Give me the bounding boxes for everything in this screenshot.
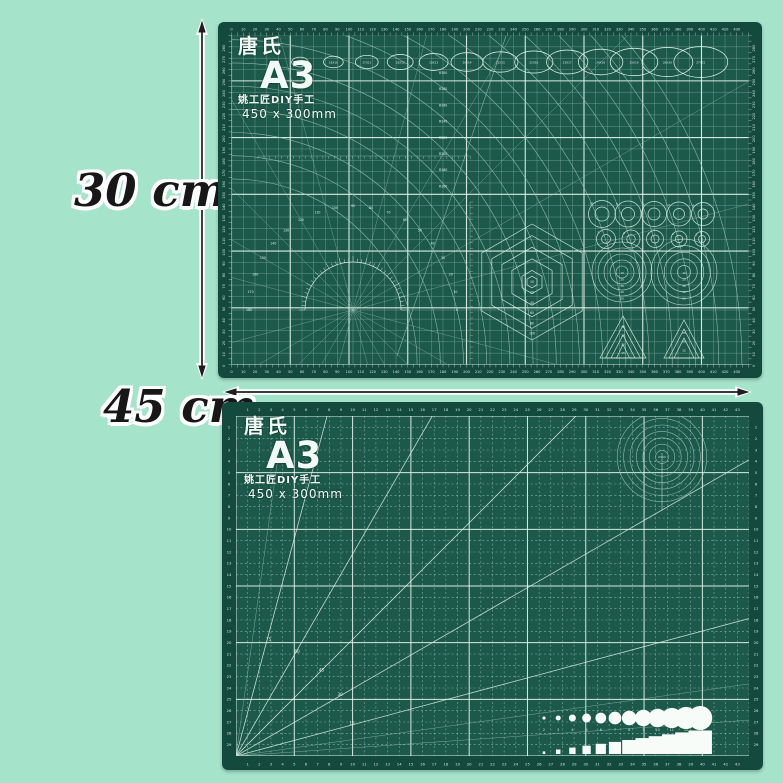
svg-text:60: 60 [300,370,305,374]
svg-text:15: 15 [349,720,355,725]
svg-text:25: 25 [525,762,530,767]
svg-text:340: 340 [628,370,636,374]
svg-text:170: 170 [248,290,254,294]
svg-text:6: 6 [600,728,602,732]
svg-text:42: 42 [723,762,728,767]
svg-text:60: 60 [294,649,300,654]
svg-text:200: 200 [752,135,756,143]
svg-text:20: 20 [682,340,686,344]
svg-text:150: 150 [404,370,412,374]
svg-text:30: 30 [264,370,269,374]
svg-text:21: 21 [227,651,232,656]
svg-text:40: 40 [700,407,705,412]
svg-text:60: 60 [752,295,756,300]
svg-text:21: 21 [754,651,759,656]
svg-text:240: 240 [510,28,518,32]
svg-text:35: 35 [642,407,647,412]
svg-text:40: 40 [276,370,281,374]
svg-text:19: 19 [455,762,460,767]
svg-text:18: 18 [443,762,448,767]
svg-text:40: 40 [222,317,226,322]
svg-text:2: 2 [672,232,674,236]
svg-text:36: 36 [653,407,658,412]
svg-text:360: 360 [651,370,659,374]
svg-text:170: 170 [222,169,226,177]
svg-text:250: 250 [522,28,530,32]
svg-text:29: 29 [754,742,759,747]
svg-text:11: 11 [227,538,232,543]
svg-text:30: 30 [583,762,588,767]
svg-text:15: 15 [754,583,759,588]
svg-text:410: 410 [710,28,718,32]
svg-text:200: 200 [222,135,226,143]
svg-text:24X18: 24X18 [596,60,605,64]
svg-text:18X12: 18X12 [396,60,405,64]
svg-text:10: 10 [655,728,659,732]
svg-text:30: 30 [222,329,226,334]
svg-text:180: 180 [440,28,448,32]
svg-text:10: 10 [350,762,355,767]
svg-text:210: 210 [222,123,226,131]
svg-text:390: 390 [686,370,694,374]
svg-text:29: 29 [227,742,232,747]
svg-text:26: 26 [227,708,232,713]
svg-text:30: 30 [264,28,269,32]
svg-text:270: 270 [222,55,226,63]
svg-text:32: 32 [607,762,612,767]
svg-text:250: 250 [522,370,530,374]
svg-text:270: 270 [545,28,553,32]
svg-text:50: 50 [288,28,293,32]
svg-text:23: 23 [754,674,759,679]
svg-text:110: 110 [357,28,365,32]
svg-text:15: 15 [621,351,625,355]
svg-text:27X21: 27X21 [696,60,705,64]
svg-text:R260: R260 [439,103,447,107]
svg-text:240: 240 [752,89,756,97]
svg-text:190: 190 [451,370,459,374]
svg-text:23: 23 [227,674,232,679]
svg-text:20: 20 [467,762,472,767]
svg-text:23X17: 23X17 [563,60,572,64]
svg-text:R300: R300 [439,71,447,75]
svg-text:100: 100 [346,370,354,374]
svg-text:20: 20 [449,273,453,277]
svg-text:10: 10 [222,351,226,356]
svg-text:19X13: 19X13 [429,60,438,64]
svg-text:6: 6 [693,204,695,208]
svg-text:130: 130 [283,229,289,233]
svg-text:80: 80 [222,272,226,277]
svg-text:250: 250 [752,78,756,86]
svg-text:10: 10 [754,527,759,532]
svg-text:14: 14 [397,407,402,412]
svg-text:390: 390 [686,28,694,32]
svg-text:200: 200 [463,370,471,374]
svg-text:26: 26 [754,708,759,713]
svg-text:22: 22 [490,762,495,767]
svg-text:230: 230 [752,101,756,109]
svg-text:28: 28 [560,762,565,767]
svg-text:140: 140 [393,370,401,374]
svg-text:140: 140 [393,28,401,32]
svg-text:28: 28 [754,731,759,736]
svg-text:0: 0 [456,308,458,312]
svg-text:230: 230 [498,370,506,374]
svg-text:120: 120 [369,28,377,32]
svg-text:140: 140 [222,203,226,211]
svg-text:17: 17 [754,606,759,611]
svg-text:25X19: 25X19 [629,60,638,64]
svg-text:10: 10 [227,527,232,532]
svg-text:22: 22 [490,407,495,412]
svg-text:32: 32 [607,407,612,412]
svg-text:270: 270 [752,55,756,63]
cutting-mat-back: 1122334455667788991010111112121313141415… [222,402,763,770]
svg-text:150: 150 [404,28,412,32]
svg-text:34: 34 [630,762,635,767]
svg-text:43: 43 [735,762,740,767]
subtitle-text: 姚工匠DIY手工 [244,476,343,486]
svg-text:31: 31 [595,407,600,412]
svg-text:9: 9 [616,202,618,206]
svg-text:10: 10 [620,271,624,275]
svg-text:39: 39 [688,407,693,412]
svg-text:11: 11 [754,538,759,543]
svg-text:16: 16 [227,595,232,600]
svg-text:260: 260 [752,67,756,75]
svg-text:40: 40 [700,762,705,767]
svg-text:13: 13 [227,561,232,566]
svg-text:300: 300 [581,370,589,374]
svg-text:10: 10 [752,351,756,356]
svg-text:29: 29 [572,407,577,412]
svg-text:27: 27 [548,407,553,412]
svg-text:29: 29 [572,762,577,767]
svg-text:60: 60 [222,295,226,300]
svg-text:170: 170 [752,169,756,177]
svg-text:240: 240 [222,89,226,97]
svg-text:R200: R200 [439,152,447,156]
svg-text:50: 50 [418,229,422,233]
svg-text:45: 45 [319,668,325,673]
svg-text:280: 280 [557,370,565,374]
svg-text:350: 350 [639,28,647,32]
svg-text:12: 12 [684,728,688,732]
svg-text:15: 15 [408,762,413,767]
svg-text:280: 280 [222,44,226,52]
svg-text:10: 10 [453,290,457,294]
brand-text: 唐氏 [244,416,343,436]
svg-text:30: 30 [583,407,588,412]
svg-text:20: 20 [530,291,534,295]
svg-text:15: 15 [227,583,232,588]
svg-text:30: 30 [338,692,344,697]
svg-text:R220: R220 [439,136,447,140]
svg-text:17: 17 [432,762,437,767]
svg-text:100: 100 [222,248,226,256]
brand-text: 唐氏 [238,36,337,56]
svg-text:370: 370 [663,28,671,32]
svg-text:60: 60 [403,218,407,222]
svg-text:360: 360 [651,28,659,32]
svg-text:24: 24 [754,685,759,690]
svg-text:160: 160 [752,180,756,188]
svg-text:120: 120 [222,225,226,233]
svg-text:26: 26 [537,762,542,767]
svg-text:70: 70 [222,283,226,288]
product-image: 30 cm 45 cm 0010102020303040405050606070… [0,0,783,783]
svg-text:120: 120 [752,225,756,233]
svg-text:12: 12 [373,407,378,412]
svg-text:13: 13 [385,407,390,412]
svg-text:5: 5 [598,231,600,235]
svg-text:17X11: 17X11 [362,60,371,64]
svg-text:180: 180 [752,157,756,165]
svg-text:20: 20 [682,277,686,281]
svg-text:16: 16 [420,407,425,412]
svg-text:24: 24 [513,407,518,412]
svg-text:R160: R160 [439,184,447,188]
svg-text:70: 70 [311,370,316,374]
svg-text:90: 90 [335,28,340,32]
svg-text:120: 120 [298,218,304,222]
svg-text:100: 100 [346,28,354,32]
svg-text:160: 160 [222,180,226,188]
svg-text:50: 50 [752,306,756,311]
svg-text:110: 110 [357,370,365,374]
svg-text:10: 10 [241,28,246,32]
svg-text:20: 20 [754,640,759,645]
svg-text:410: 410 [710,370,718,374]
svg-text:340: 340 [628,28,636,32]
svg-text:350: 350 [639,370,647,374]
svg-text:180: 180 [222,157,226,165]
svg-text:19: 19 [455,407,460,412]
svg-text:90: 90 [335,370,340,374]
svg-text:19: 19 [754,629,759,634]
svg-text:370: 370 [663,370,671,374]
svg-text:290: 290 [569,370,577,374]
svg-text:160: 160 [416,28,424,32]
svg-text:39: 39 [688,762,693,767]
svg-text:R180: R180 [439,168,447,172]
svg-text:40: 40 [752,317,756,322]
svg-text:27: 27 [548,762,553,767]
svg-text:37: 37 [665,762,670,767]
svg-text:35: 35 [642,762,647,767]
svg-text:300: 300 [581,28,589,32]
svg-text:210: 210 [475,370,483,374]
svg-text:420: 420 [722,28,730,32]
svg-text:430: 430 [733,28,741,32]
svg-text:20: 20 [222,340,226,345]
svg-text:100: 100 [529,332,535,336]
svg-text:380: 380 [675,370,683,374]
svg-text:230: 230 [222,101,226,109]
svg-text:200: 200 [463,28,471,32]
svg-text:30: 30 [752,329,756,334]
svg-text:23: 23 [502,407,507,412]
svg-text:30: 30 [621,325,625,329]
spec-text: 450 x 300mm [248,488,343,500]
svg-text:120: 120 [369,370,377,374]
svg-text:11: 11 [362,407,367,412]
svg-text:260: 260 [534,28,542,32]
svg-text:33: 33 [618,762,623,767]
svg-text:220: 220 [752,112,756,120]
svg-text:1: 1 [696,233,698,237]
svg-text:42: 42 [723,407,728,412]
svg-text:320: 320 [604,28,612,32]
svg-text:34: 34 [630,407,635,412]
svg-text:17: 17 [227,606,232,611]
svg-text:12: 12 [373,762,378,767]
svg-text:310: 310 [592,370,600,374]
svg-text:37: 37 [665,407,670,412]
svg-text:15: 15 [682,348,686,352]
svg-text:30: 30 [620,284,624,288]
svg-text:36: 36 [653,762,658,767]
svg-text:80: 80 [530,321,534,325]
svg-text:30: 30 [441,256,445,260]
svg-text:320: 320 [604,370,612,374]
svg-text:25: 25 [227,697,232,702]
svg-text:60: 60 [300,28,305,32]
svg-text:20: 20 [227,640,232,645]
svg-text:10: 10 [530,280,534,284]
svg-text:33: 33 [618,407,623,412]
svg-text:38: 38 [677,407,682,412]
svg-text:10: 10 [590,202,594,206]
svg-text:190: 190 [752,146,756,154]
svg-text:150: 150 [752,191,756,199]
svg-text:20: 20 [620,277,624,281]
svg-text:240: 240 [510,370,518,374]
svg-text:150: 150 [260,256,266,260]
svg-text:28: 28 [227,731,232,736]
svg-text:41: 41 [712,407,717,412]
svg-text:22: 22 [754,663,759,668]
svg-text:190: 190 [222,146,226,154]
svg-text:25: 25 [621,334,625,338]
svg-text:50: 50 [620,297,624,301]
svg-text:31: 31 [595,762,600,767]
svg-text:60: 60 [530,311,534,315]
svg-text:30: 30 [682,284,686,288]
svg-text:18: 18 [754,617,759,622]
svg-text:10: 10 [241,370,246,374]
svg-text:190: 190 [451,28,459,32]
svg-text:12: 12 [754,549,759,554]
svg-text:80: 80 [369,206,373,210]
svg-text:13: 13 [385,762,390,767]
svg-text:10: 10 [350,407,355,412]
width-dimension-arrow [222,383,752,401]
svg-text:9: 9 [642,728,644,732]
svg-text:14: 14 [754,572,759,577]
svg-text:250: 250 [222,78,226,86]
svg-text:70: 70 [387,210,391,214]
svg-text:11: 11 [362,762,367,767]
svg-text:80: 80 [752,272,756,277]
svg-text:210: 210 [475,28,483,32]
svg-text:24: 24 [227,685,232,690]
svg-text:75: 75 [266,637,272,642]
svg-text:50: 50 [222,306,226,311]
svg-text:27: 27 [754,719,759,724]
svg-text:130: 130 [381,28,389,32]
svg-text:18: 18 [443,407,448,412]
svg-text:210: 210 [752,123,756,131]
svg-text:380: 380 [675,28,683,32]
svg-text:3: 3 [648,232,650,236]
svg-text:70: 70 [752,283,756,288]
svg-text:260: 260 [534,370,542,374]
svg-text:8: 8 [628,728,630,732]
svg-text:130: 130 [752,214,756,222]
front-mat-header: 唐氏 A3 姚工匠DIY手工 450 x 300mm [238,36,337,120]
svg-text:7: 7 [614,728,616,732]
svg-text:50: 50 [682,297,686,301]
svg-text:40: 40 [431,241,435,245]
svg-text:43: 43 [735,407,740,412]
svg-text:70: 70 [311,28,316,32]
svg-text:R280: R280 [439,87,447,91]
svg-text:140: 140 [270,241,276,245]
svg-text:20: 20 [621,342,625,346]
svg-text:260: 260 [222,67,226,75]
svg-text:40: 40 [620,290,624,294]
subtitle-text: 姚工匠DIY手工 [238,96,337,106]
svg-text:270: 270 [545,370,553,374]
svg-text:R240: R240 [439,120,447,124]
svg-text:330: 330 [616,370,624,374]
svg-text:400: 400 [698,370,706,374]
svg-text:14: 14 [227,572,232,577]
svg-text:16: 16 [754,595,759,600]
svg-text:180: 180 [246,308,252,312]
svg-text:11: 11 [670,728,674,732]
svg-text:25: 25 [682,331,686,335]
svg-text:25: 25 [525,407,530,412]
svg-text:26X20: 26X20 [663,60,672,64]
svg-text:150: 150 [222,191,226,199]
svg-text:21: 21 [478,762,483,767]
svg-text:23: 23 [502,762,507,767]
svg-text:50: 50 [288,370,293,374]
svg-text:3: 3 [557,728,559,732]
svg-text:400: 400 [698,28,706,32]
svg-text:7: 7 [668,203,670,207]
svg-text:170: 170 [428,370,436,374]
svg-text:180: 180 [440,370,448,374]
svg-text:12: 12 [227,549,232,554]
svg-text:20: 20 [253,28,258,32]
svg-text:20X14: 20X14 [462,60,471,64]
svg-text:220: 220 [487,28,495,32]
svg-text:170: 170 [428,28,436,32]
svg-text:110: 110 [222,237,226,245]
svg-text:2: 2 [543,728,545,732]
svg-text:20: 20 [467,407,472,412]
svg-text:22X16: 22X16 [529,60,538,64]
svg-text:10: 10 [682,271,686,275]
height-label: 30 cm [74,164,227,217]
size-text: A3 [266,437,343,474]
svg-text:20: 20 [253,370,258,374]
svg-text:140: 140 [752,203,756,211]
